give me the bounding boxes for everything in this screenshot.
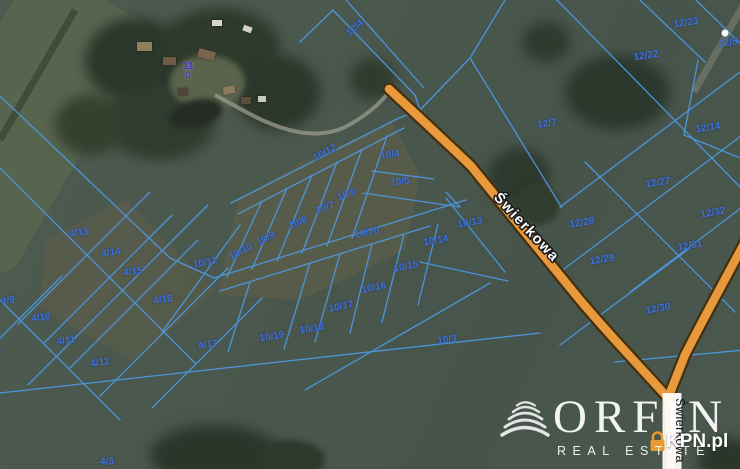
parcel-label-10/11: 10/11	[192, 255, 218, 271]
parcel-label-4/3: 4/3	[100, 457, 114, 468]
parcel-label-4/17: 4/17	[198, 338, 219, 352]
parcel-label-10/9: 10/9	[255, 230, 277, 249]
parcel-label-12/23: 12/23	[673, 16, 699, 30]
parcel-label-4/15: 4/15	[123, 265, 144, 279]
parcel-label-10/17: 10/17	[328, 299, 355, 315]
parcel-label-10/16: 10/16	[361, 280, 388, 296]
parcel-label-4/14: 4/14	[101, 246, 122, 260]
parcel-label-10/5: 10/5	[390, 175, 411, 189]
parcel-label-10/14: 10/14	[423, 233, 450, 248]
parcel-label-10/3: 10/3	[437, 333, 458, 347]
parcel-label-12/4: 12/4	[344, 17, 366, 38]
parcel-label-4/12: 4/12	[90, 356, 111, 370]
parcel-label-10/15: 10/15	[393, 259, 420, 275]
parcel-label-12/22: 12/22	[633, 49, 659, 63]
parcel-label-10/10: 10/10	[227, 241, 254, 262]
address-marker: 11 0	[183, 62, 194, 80]
parcel-label-10/12: 10/12	[311, 142, 338, 163]
parcel-label-12/32: 12/32	[700, 205, 727, 220]
parcel-label-10/20: 10/20	[354, 225, 381, 241]
parcel-label-12/30: 12/30	[645, 301, 672, 316]
watermark-portal: KPN.pl	[648, 431, 728, 453]
address-sub: 0	[183, 71, 194, 80]
parcel-label-12/28: 12/28	[569, 215, 596, 230]
parcel-label-10/6: 10/6	[336, 187, 358, 204]
parcel-label-10/13: 10/13	[457, 215, 484, 230]
parcel-label-10/8: 10/8	[287, 215, 309, 232]
parcel-label-10/4: 10/4	[380, 148, 401, 162]
parcel-label-12/31: 12/31	[677, 238, 704, 253]
parcel-label-4/9: 4/9	[0, 295, 15, 308]
parcel-label-4/16: 4/16	[153, 293, 174, 307]
map-canvas: Świerkowa Świerkowa 4/134/144/154/164/94…	[0, 0, 740, 469]
parcel-label-4/13: 4/13	[69, 226, 90, 240]
parcel-label-12/7: 12/7	[537, 117, 558, 131]
parcel-label-10/18: 10/18	[299, 321, 326, 336]
portal-name: KPN.pl	[666, 431, 728, 453]
parcel-label-4/11: 4/11	[56, 334, 76, 348]
parcel-label-12/27: 12/27	[645, 175, 672, 190]
parcel-label-4/8: 4/8	[0, 346, 2, 359]
parcel-label-12/14: 12/14	[695, 121, 721, 135]
parcel-label-10/19: 10/19	[259, 329, 286, 344]
parcel-label-10/7: 10/7	[314, 200, 336, 217]
parcel-label-4/10: 4/10	[31, 311, 52, 325]
parcel-label-12/5: 12/5	[718, 36, 739, 50]
parcel-label-12/29: 12/29	[589, 252, 616, 267]
